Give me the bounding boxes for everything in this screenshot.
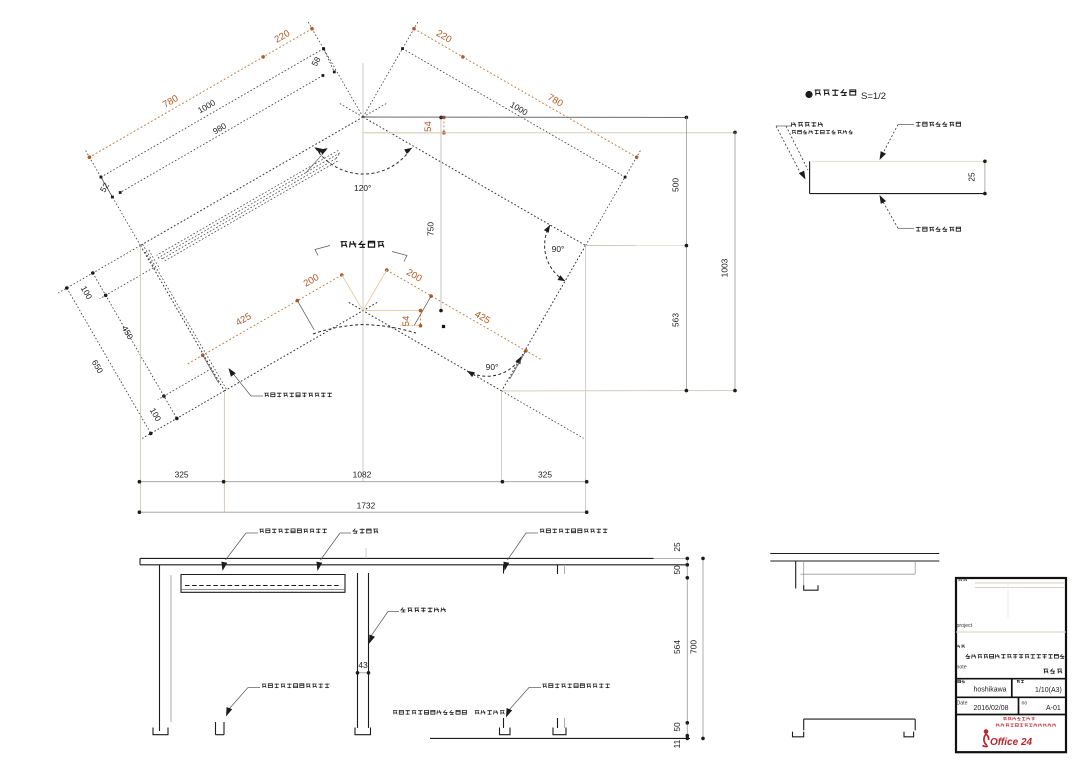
svg-text:43: 43 — [358, 660, 368, 670]
svg-text:325: 325 — [538, 470, 552, 480]
svg-text:25: 25 — [672, 542, 682, 552]
svg-text:50: 50 — [672, 565, 682, 575]
svg-text:750: 750 — [426, 222, 436, 236]
svg-text:A-01: A-01 — [1046, 705, 1061, 712]
svg-text:project: project — [957, 623, 973, 629]
svg-text:700: 700 — [689, 640, 699, 654]
svg-text:2016/02/08: 2016/02/08 — [974, 705, 1009, 712]
svg-text:50: 50 — [672, 722, 682, 732]
svg-text:325: 325 — [175, 470, 189, 480]
svg-text:500: 500 — [671, 178, 681, 192]
svg-text:54: 54 — [423, 121, 434, 132]
svg-text:no: no — [1022, 701, 1028, 707]
svg-text:11: 11 — [672, 739, 682, 748]
svg-text:1/10(A3): 1/10(A3) — [1035, 687, 1062, 694]
svg-text:563: 563 — [671, 313, 681, 327]
svg-text:hoshikawa: hoshikawa — [974, 687, 1007, 694]
svg-text:Date: Date — [957, 701, 968, 707]
svg-text:Office 24: Office 24 — [990, 737, 1032, 748]
svg-text:120°: 120° — [354, 183, 371, 193]
svg-text:564: 564 — [672, 640, 682, 654]
svg-text:54: 54 — [401, 315, 412, 326]
svg-text:25: 25 — [967, 172, 977, 182]
svg-text:1003: 1003 — [720, 258, 730, 277]
svg-text:90°: 90° — [552, 244, 565, 254]
svg-text:S=1/2: S=1/2 — [861, 91, 886, 102]
svg-text:1082: 1082 — [353, 470, 372, 480]
svg-text:90°: 90° — [486, 362, 499, 372]
svg-text:note: note — [957, 665, 967, 671]
svg-text:1732: 1732 — [357, 501, 376, 511]
